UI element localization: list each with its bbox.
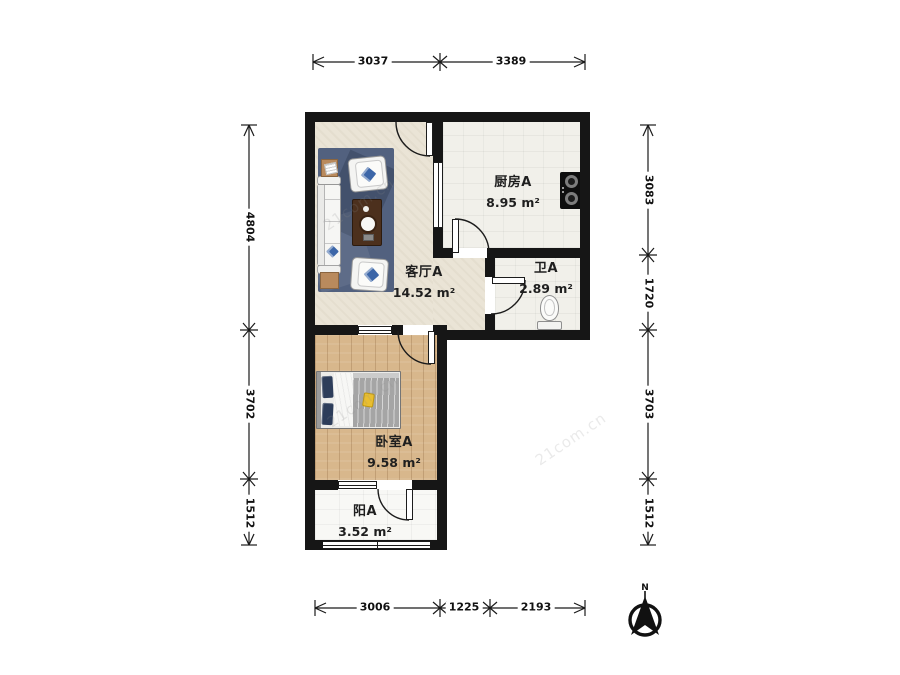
wall-outer-right-upper: [580, 112, 590, 340]
wall-kitchen-bottom-left: [433, 248, 453, 258]
bed-cushion: [362, 392, 375, 408]
coffee-table: [352, 199, 382, 246]
wall-living-bedroom-mid: [392, 325, 403, 335]
magazine: [324, 162, 338, 175]
dim-right-2: 1720: [642, 275, 655, 312]
bed-pillow-bottom: [321, 403, 333, 426]
bedroom-label: 卧室A 9.58 m²: [319, 433, 469, 473]
dim-right-4: 1512: [642, 495, 655, 532]
toilet-seat: [544, 299, 555, 316]
watermark-text: 21com.cn: [532, 409, 610, 470]
bathroom-label: 卫A 2.89 m²: [471, 259, 621, 299]
entrance-door-leaf: [426, 122, 433, 156]
dim-right-3: 3703: [642, 386, 655, 423]
wall-living-bedroom-right: [433, 325, 447, 335]
dimension-line-left: [240, 125, 258, 545]
room-area: 9.58 m²: [319, 453, 469, 472]
wall-kitchen-divider-upper: [433, 112, 443, 162]
wall-kitchen-bottom-right: [487, 248, 590, 258]
room-area: 3.52 m²: [290, 522, 440, 541]
dim-left-2: 3702: [243, 386, 256, 423]
sofa-backrest: [318, 185, 325, 265]
tray: [363, 234, 374, 241]
kitchen-door-leaf: [452, 219, 459, 253]
balcony-window: [318, 541, 435, 549]
room-area: 8.95 m²: [438, 193, 588, 212]
dim-left-3: 1512: [243, 495, 256, 532]
kitchen-label: 厨房A 8.95 m²: [438, 173, 588, 213]
dim-right-1: 3083: [642, 172, 655, 209]
wall-bedroom-balcony-left: [305, 480, 338, 490]
bed-blanket: [353, 373, 399, 427]
toilet-bowl: [540, 295, 559, 321]
bed-sheet: [334, 373, 353, 426]
wall-bathroom-bottom: [437, 330, 590, 340]
room-area: 2.89 m²: [471, 279, 621, 298]
bed-pillow-top: [321, 376, 333, 399]
floor-plan-canvas: 客厅A 14.52 m² 厨房A 8.95 m² 卫A 2.89 m² 卧室A …: [0, 0, 900, 675]
dim-bottom-3: 2193: [518, 602, 555, 615]
living-bedroom-window: [358, 326, 392, 334]
wall-outer-top: [305, 112, 590, 122]
bed: [316, 371, 401, 429]
sofa-pillow: [326, 245, 339, 258]
side-table-top: [321, 159, 338, 177]
dim-bottom-2: 1225: [446, 602, 483, 615]
toilet-tank: [537, 321, 562, 330]
balcony-label: 阳A 3.52 m²: [290, 502, 440, 542]
bed-headboard: [317, 372, 321, 428]
room-name: 卫A: [471, 259, 621, 279]
bedroom-door-leaf: [428, 331, 435, 364]
bedroom-balcony-window: [338, 481, 377, 489]
room-name: 厨房A: [438, 173, 588, 193]
dim-bottom-1: 3006: [357, 602, 394, 615]
room-name: 卧室A: [319, 433, 469, 453]
dim-top-2: 3389: [493, 56, 530, 69]
compass-north-label: N: [641, 583, 649, 593]
compass-icon: [630, 591, 660, 635]
cup: [363, 206, 369, 212]
wall-bathroom-left-lower: [485, 314, 495, 330]
dim-top-1: 3037: [355, 56, 392, 69]
room-name: 阳A: [290, 502, 440, 522]
wall-living-bedroom-left: [305, 325, 358, 335]
armchair-top: [347, 155, 388, 193]
plate: [361, 217, 375, 231]
side-table-bottom: [320, 272, 339, 289]
wall-bedroom-balcony-right: [412, 480, 447, 490]
dim-left-1: 4804: [243, 209, 256, 246]
sofa: [317, 184, 341, 266]
